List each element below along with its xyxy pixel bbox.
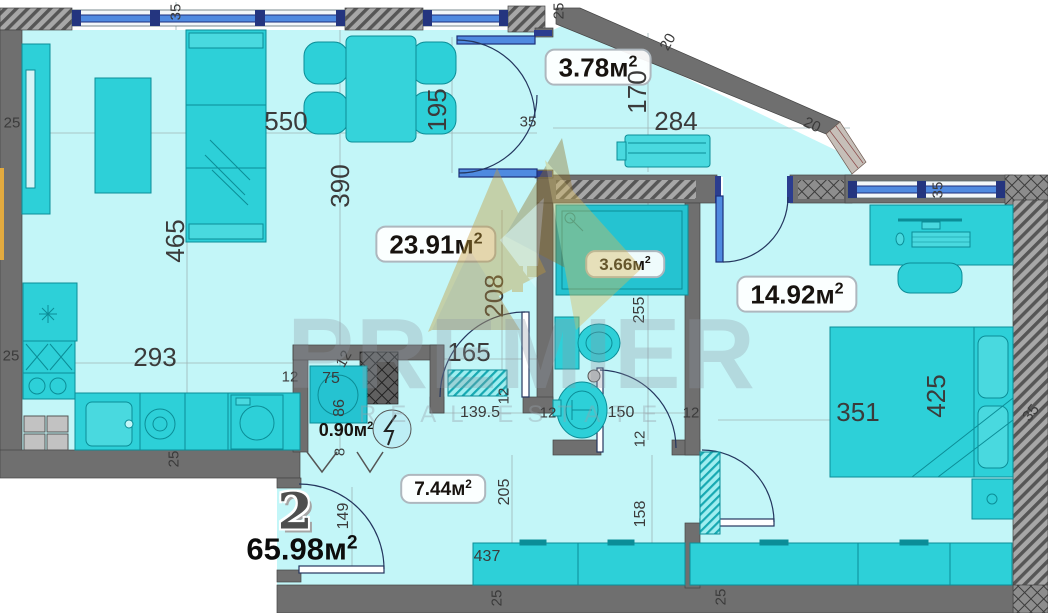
kitchen-fridge — [23, 283, 77, 341]
dim-hall-139-5: 139.5 — [460, 405, 500, 421]
dim-bottom-left-25: 25 — [490, 590, 505, 607]
coffee-table — [95, 78, 151, 193]
bedroom-radiator — [700, 452, 720, 534]
dim-living-390: 390 — [327, 164, 353, 207]
dim-bedroom-window-35: 35 — [931, 182, 946, 199]
dim-balcony-top-25: 25 — [552, 3, 567, 20]
dim-closet-door-8: 8 — [333, 448, 348, 456]
sofa — [186, 30, 266, 242]
dim-hall-158: 158 — [633, 501, 649, 528]
dim-closet-75: 75 — [322, 371, 340, 387]
dim-hall-205: 205 — [497, 479, 513, 506]
dim-bedroom-425: 425 — [923, 374, 949, 417]
tv-unit — [22, 44, 50, 214]
dim-living-opening-165: 165 — [447, 339, 490, 365]
dim-balcony-284: 284 — [654, 108, 697, 134]
nightstand — [972, 479, 1013, 519]
dim-bedroom-351: 351 — [836, 399, 879, 425]
dim-hall-12-b: 12 — [683, 406, 700, 421]
ac-unit — [617, 135, 710, 167]
desk-chair — [898, 263, 962, 293]
mouse — [896, 233, 904, 245]
dim-living-550: 550 — [264, 108, 307, 134]
dim-cabinet-437: 437 — [474, 549, 501, 565]
dim-balcony-170: 170 — [624, 70, 650, 113]
dim-kitchen-293: 293 — [133, 344, 176, 370]
faucet — [125, 420, 133, 428]
dim-left-lower-25: 25 — [3, 349, 20, 364]
dim-hall-12-a: 12 — [540, 406, 557, 421]
living-window-2 — [423, 10, 508, 26]
dim-left-upper-25: 25 — [4, 116, 21, 131]
dim-balcony-door-195: 195 — [424, 88, 450, 131]
dim-living-465: 465 — [162, 219, 188, 262]
living-window — [72, 10, 345, 26]
electrical-panel — [373, 410, 411, 448]
kitchen-sink-unit — [23, 373, 75, 399]
kitchen-hob — [23, 341, 75, 373]
kitchen-counter — [75, 393, 300, 450]
room-label-living: 23.91м2 — [375, 226, 496, 263]
dim-bath-door-150: 150 — [608, 405, 635, 421]
room-label-bathroom: 3.66м2 — [585, 250, 665, 278]
dim-living-opening-208: 208 — [481, 274, 507, 317]
room-label-hallway: 7.44м2 — [400, 474, 486, 504]
washing-machine — [231, 395, 283, 449]
dim-kitchen-right-12: 12 — [282, 370, 299, 385]
dim-bedroom-door-12: 12 — [633, 431, 648, 448]
floor-plan-canvas — [0, 0, 1048, 613]
hall-cabinet — [473, 540, 685, 585]
room-label-closet: 0.90м2 — [319, 421, 374, 439]
dim-bottom-right-25: 25 — [714, 589, 729, 606]
dim-closet-86: 86 — [332, 399, 348, 417]
total-area: 65.98м2 — [246, 533, 357, 564]
dim-entry-149: 149 — [336, 503, 352, 530]
desk — [870, 205, 1013, 265]
floor-plan: 23.91м2 3.78м2 3.66м2 14.92м2 0.90м2 7.4… — [0, 0, 1048, 613]
dim-hall-12-c: 12 — [497, 388, 512, 405]
wardrobe — [690, 540, 1012, 585]
dim-bath-255: 255 — [632, 297, 648, 324]
dim-balcony-door-wall-35: 35 — [520, 115, 537, 130]
dim-kitchen-bottom-25: 25 — [167, 451, 182, 468]
bedroom-window — [848, 181, 1005, 198]
dim-top-wall-35: 35 — [169, 4, 184, 21]
floors — [22, 22, 1013, 585]
room-label-bedroom: 14.92м2 — [736, 276, 857, 313]
